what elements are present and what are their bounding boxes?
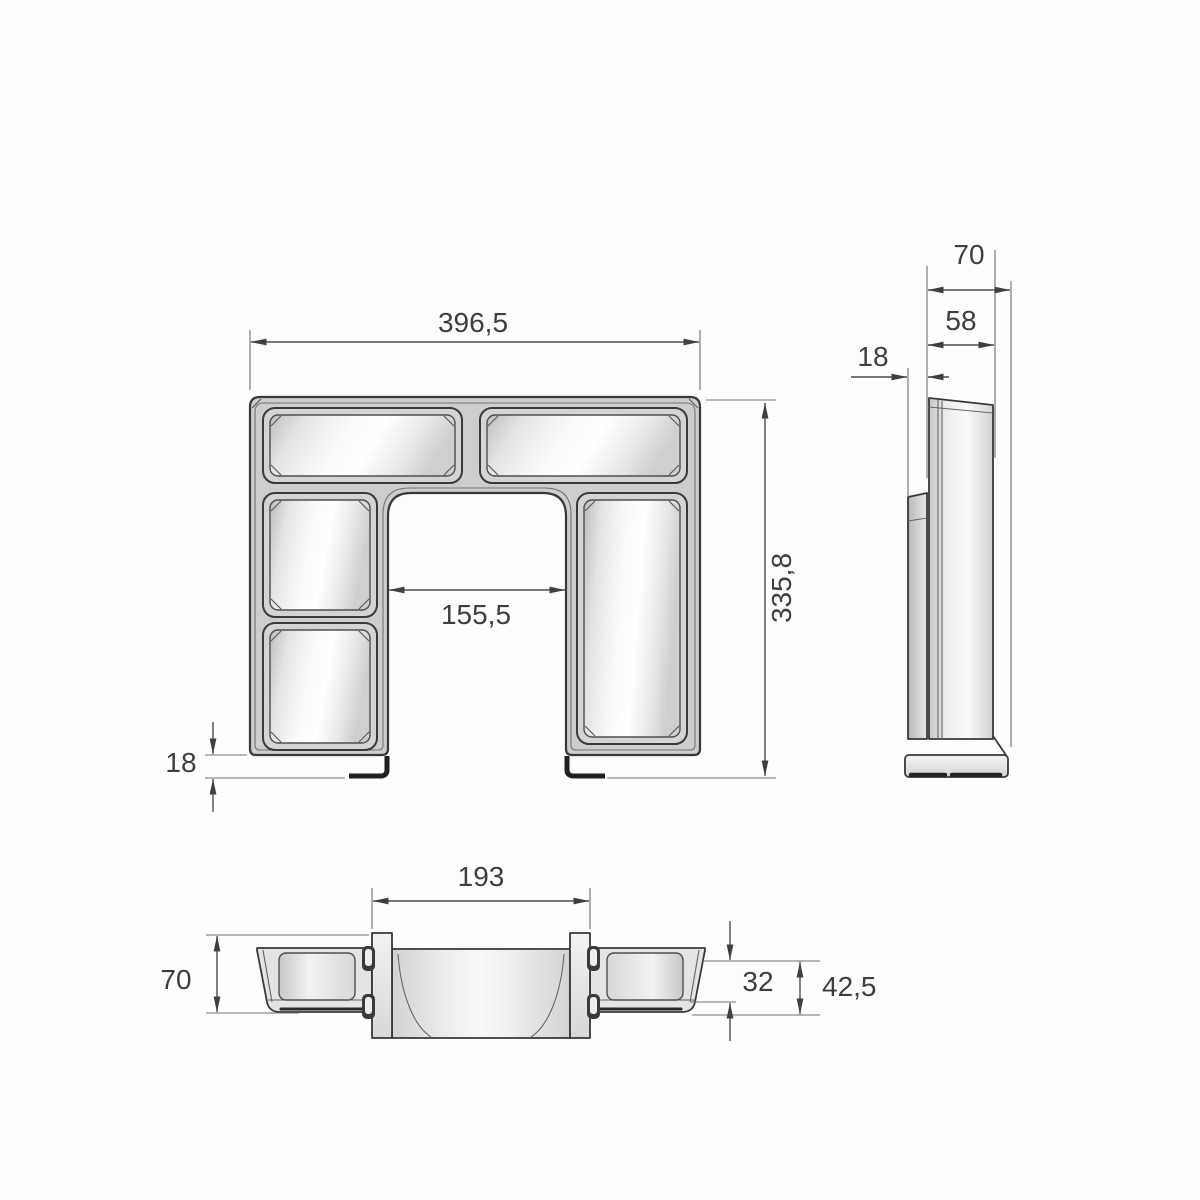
- side-chamfer-edge: [993, 736, 1006, 755]
- bottom-view: 193 70 32 42,5: [160, 861, 876, 1041]
- bottom-post: [372, 933, 392, 1038]
- front-view: 396,5 335,8 155,5 18: [165, 307, 797, 812]
- technical-drawing: 396,5 335,8 155,5 18 70 58 18: [0, 0, 1200, 1200]
- dim-bottom-total-height: 70: [160, 964, 191, 995]
- front-foot-right: [567, 756, 605, 776]
- dim-side-total-depth: 70: [953, 239, 984, 270]
- dim-front-foot-height: 18: [165, 747, 196, 778]
- dim-side-front-depth: 58: [945, 305, 976, 336]
- compartment-top-right: [480, 408, 687, 483]
- dim-bottom-inner-height: 32: [742, 966, 773, 997]
- side-panel: [929, 398, 993, 739]
- drawing-canvas: 396,5 335,8 155,5 18 70 58 18: [0, 0, 1200, 1200]
- side-view: 70 58 18: [851, 239, 1011, 777]
- compartment-top-left: [263, 408, 462, 483]
- dim-front-overall-height: 335,8: [766, 553, 797, 623]
- dim-bottom-channel-width: 193: [458, 861, 505, 892]
- bottom-wing-compartment: [279, 953, 355, 1000]
- side-back-strip: [908, 493, 927, 739]
- front-foot-left: [349, 756, 387, 776]
- compartment-left-bottom: [263, 623, 377, 750]
- dim-front-overall-width: 396,5: [438, 307, 508, 338]
- compartment-right-tall: [577, 493, 687, 744]
- bottom-view-left-half: [257, 933, 392, 1038]
- dim-bottom-outer-height: 42,5: [822, 971, 877, 1002]
- compartment-left-middle: [263, 493, 377, 617]
- bottom-view-right-half: [570, 933, 705, 1038]
- dim-front-opening-width: 155,5: [441, 599, 511, 630]
- dim-side-back-offset: 18: [857, 341, 888, 372]
